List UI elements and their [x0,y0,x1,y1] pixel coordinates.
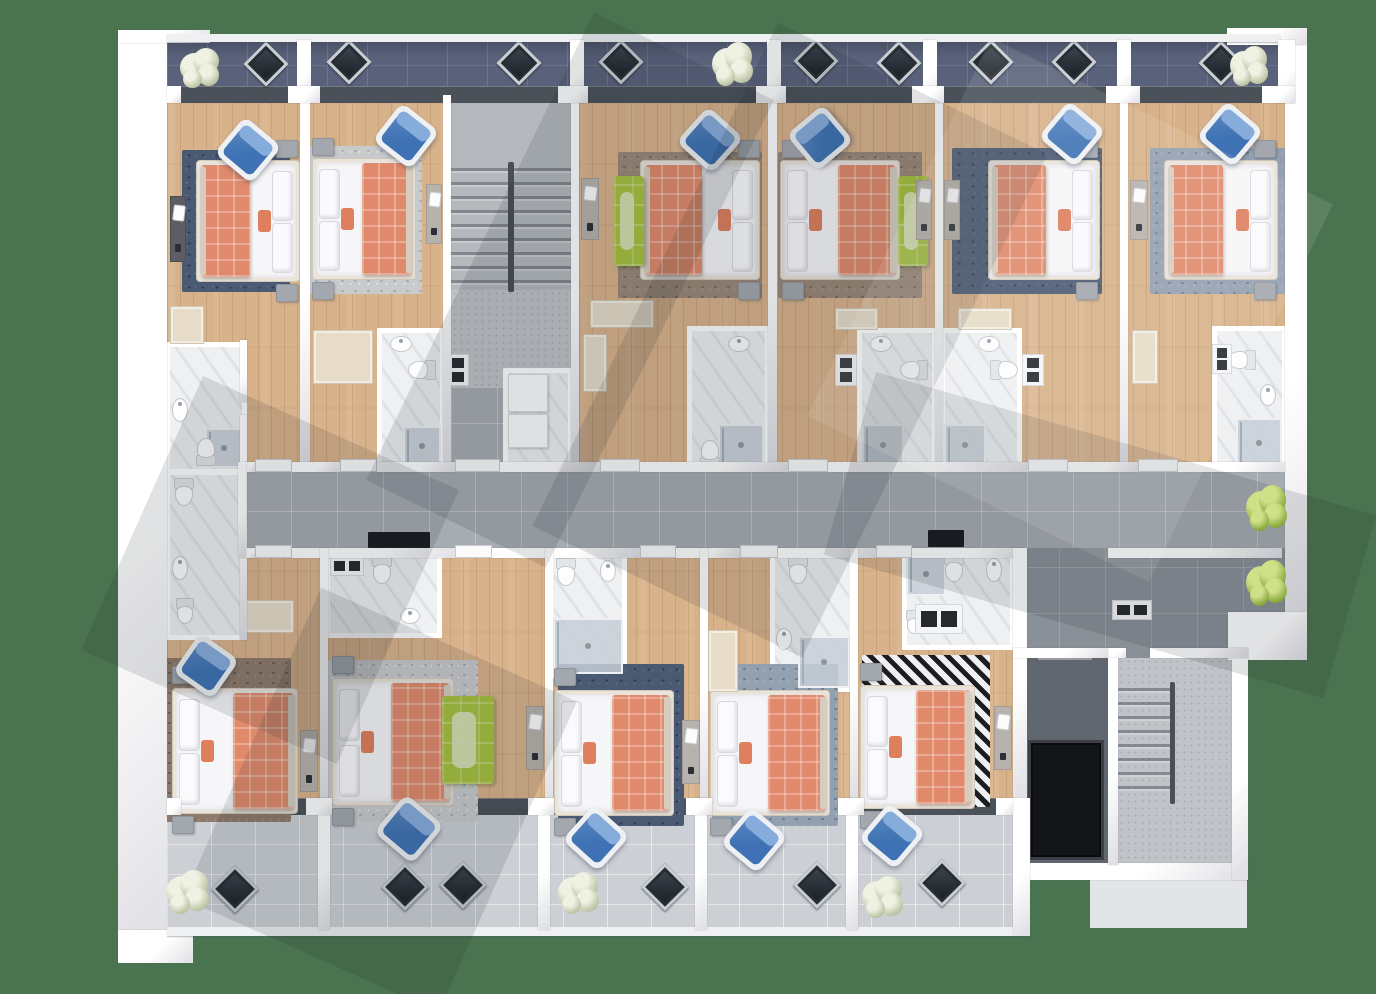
nightstand-s11a [860,663,882,681]
railing-top [167,34,1280,42]
sink-s6 [1260,384,1276,406]
window-mullion-t5 [1106,86,1140,103]
shower-s11 [906,552,946,596]
sink-s7 [172,556,188,580]
shower-s5 [944,424,986,466]
wall-s7-s8 [320,548,328,800]
bed-s10 [710,690,830,816]
stairs-lower-rail [1170,682,1175,804]
window-mullion-t4 [912,86,944,103]
utility-panel-5 [330,556,364,576]
bed-s11 [860,685,975,809]
wall-stair-rightside [571,95,579,467]
balcony-partition-b4 [846,798,858,930]
window-mullion-t0 [167,86,181,103]
closet-s3 [590,300,654,328]
wall-corr-bot-5 [778,548,876,558]
bidet-s7 [176,598,194,624]
bed-s9 [554,690,674,816]
sink-s1 [172,398,188,422]
wall-s4-s5 [935,95,943,467]
bed-s5 [988,160,1100,280]
wall-stair-right [1232,648,1248,880]
utility-panel-3 [1022,354,1044,386]
nightstand-s1a [276,140,298,158]
plant-balcony-t2 [712,42,756,88]
bed-s7 [172,688,298,814]
wall-s10-s11 [850,548,858,800]
wall-shaft-top [1013,648,1108,658]
plant-corridor-1 [1246,485,1290,533]
window-mullion-t2 [558,86,588,103]
balcony-partition-b3 [695,798,707,930]
shower-s6 [1236,418,1282,468]
stairs-upper-rail [508,162,514,292]
shower-s10 [798,636,850,688]
wall-corr-bot-7 [1108,548,1282,558]
door-s9 [640,545,676,558]
closet-s7 [242,600,294,633]
wall-corr-top-8 [1178,462,1285,472]
toilet-s4 [900,360,928,380]
wall-corr-top-1 [245,462,255,472]
wall-corr-top-3 [377,462,455,472]
toilet-s5 [990,360,1018,380]
window-mullion-b0 [167,798,181,815]
balcony-end-right [1013,798,1030,935]
door-s6 [1138,459,1178,472]
wall-corr-bot-4 [676,548,740,558]
desk-s7 [300,730,318,792]
floor-plan-render [0,0,1376,994]
shower-s9 [553,618,623,674]
desk-s4 [916,180,932,240]
bench-s3 [614,176,644,266]
wardrobe-s10 [708,630,738,692]
desk-s5 [944,180,960,240]
utility-panel-4 [1212,344,1232,374]
plant-balcony-b3 [862,876,906,920]
wall-corr-bot-6 [912,548,1025,558]
desk-s11 [994,706,1012,770]
sink-s3 [728,336,750,352]
utility-panel-2 [835,354,857,386]
plant-balcony-b2 [558,872,602,916]
railing-bottom [167,927,1030,936]
plant-balcony-t1 [180,48,222,90]
wall-corr-top-6 [828,462,1028,472]
balcony-partition-b2 [538,798,550,930]
wall-corr-top-4 [500,462,600,472]
wall-s1-s2 [300,95,310,467]
bed-s4 [780,160,900,280]
toilet-s2 [408,360,436,380]
bed-s8 [332,678,454,806]
stairs-lower-steps [1118,688,1172,800]
wall-bottomright [1015,863,1248,880]
door-s8 [455,545,492,558]
desk-s8 [526,706,544,770]
wall-corr-bot-2 [292,548,455,558]
elevator-cab [1028,740,1104,860]
wall-s8-s9 [545,548,553,800]
plant-corridor-2 [1246,560,1290,608]
desk-s3 [581,178,599,240]
sofa-s8 [442,696,494,784]
entry-mat-s11 [928,530,964,547]
door-s5 [1028,459,1068,472]
shower-s4 [862,424,904,466]
closet-s1 [170,306,204,344]
wall-corr-bot-3 [492,548,640,558]
bed-s2 [312,158,416,280]
utility-panel-6 [915,604,963,634]
toilet-s8 [372,556,392,584]
nightstand-s2a [312,138,334,156]
door-s4 [788,459,828,472]
nightstand-s8b [332,808,354,826]
nightstand-s8a [332,656,354,674]
balcony-partition-b1 [318,798,330,930]
closet-s2 [313,330,373,384]
shower-s3 [718,424,764,466]
wall-core-left [1108,658,1118,865]
sink-s8 [400,608,420,624]
wall-s5-s6 [1120,95,1128,467]
utility-panel-7 [1112,600,1152,620]
wall-corr-left-end [238,462,246,558]
window-mullion-b3 [686,798,712,815]
door-s11 [876,545,912,558]
sink-s10 [776,628,792,650]
bed-s3 [640,160,760,280]
plant-balcony-t3 [1230,46,1270,88]
closet-s6 [1132,330,1158,384]
sink-s11 [986,558,1002,582]
nightstand-s3b [738,282,760,300]
door-s7 [255,545,292,558]
door-s10 [740,545,778,558]
window-mullion-t6 [1262,86,1295,103]
toilet-s11 [944,554,964,582]
toilet-s6 [1228,350,1256,370]
window-mullion-b4 [838,798,864,815]
bed-s6 [1164,160,1278,280]
toilet-s10 [788,556,808,584]
entry-mat-s8 [368,532,430,548]
desk-s2 [426,184,442,244]
sink-s2 [390,336,412,352]
door-s1 [255,459,292,472]
wall-left [118,30,167,963]
sink-s5 [978,336,1000,352]
sink-s4 [870,336,892,352]
nightstand-s5b [1076,282,1098,300]
wall-core-top-1 [1108,648,1126,658]
wall-s3-s4 [768,95,777,467]
window-mullion-b1 [306,798,332,815]
window-mullion-b5 [996,798,1013,815]
wall-corr-top-5 [640,462,788,472]
wall-s9-s10 [700,548,708,800]
toilet-s9 [556,558,576,586]
closet-s4 [835,308,878,330]
window-mullion-t3 [756,86,786,103]
terrace-slab [1090,880,1247,928]
wall-corr-top-2 [292,462,340,472]
shelf-storage-2 [508,414,548,448]
nightstand-s2b [312,282,334,300]
nightstand-s3a [738,140,760,158]
nightstand-s7b [172,816,194,834]
nightstand-s6a [1254,140,1276,158]
shower-s2 [403,426,441,466]
stair-hall-floor [451,386,505,470]
desk-s9 [682,720,700,784]
toilet-s1 [196,438,216,466]
window-mullion-b2 [528,798,554,815]
wall-corr-bot-1 [245,548,255,558]
sink-s9 [600,560,616,582]
plant-balcony-b1 [166,870,212,916]
closet-s5 [958,308,1012,330]
window-mullion-t1 [288,86,320,103]
shelf-storage-1 [508,374,548,412]
dresser-s3 [583,334,607,392]
nightstand-s9a [554,668,576,686]
desk-s6 [1130,180,1148,240]
nightstand-s6b [1254,282,1276,300]
door-s2 [340,459,377,472]
wall-corr-top-7 [1068,462,1138,472]
toilet-s7 [174,478,194,506]
wall-core-top-2 [1150,648,1248,658]
door-stair [455,459,500,472]
door-s3 [600,459,640,472]
desk-s1 [170,196,186,262]
wall-stair-left [443,95,451,467]
nightstand-s4b [782,282,804,300]
wall-bathcol-a [240,340,247,402]
nightstand-s1b [276,284,298,302]
wall-s11-hall [1013,548,1027,800]
